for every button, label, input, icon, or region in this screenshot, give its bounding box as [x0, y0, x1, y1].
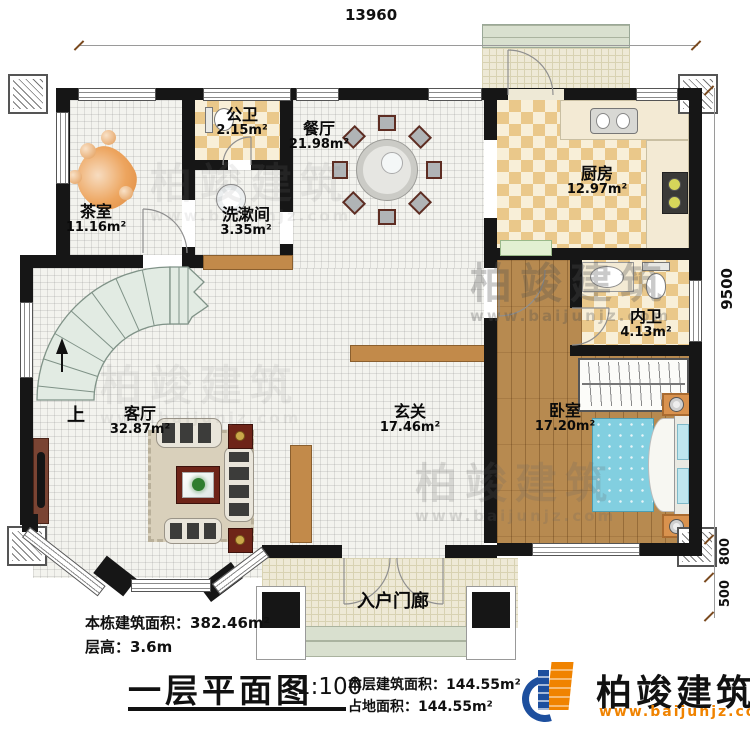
stairs-up-label: 上 — [67, 406, 85, 427]
porch-step-1 — [302, 626, 480, 641]
bedroom-name: 卧室 — [535, 402, 595, 420]
window-tea-left — [56, 112, 69, 184]
window-stairs-left — [20, 302, 33, 378]
room-label-public-bath: 公卫 2.15m² — [216, 106, 267, 139]
kitchen-sink-bowl-2 — [616, 113, 630, 129]
footer-floor-height: 层高：3.6m — [85, 636, 172, 657]
dim-label-step: 500 — [718, 580, 733, 607]
dim-label-height: 9500 — [718, 268, 736, 310]
room-label-dining: 餐厅 21.98m² — [289, 120, 349, 153]
sofa-long-cushions — [229, 452, 249, 516]
dining-chair-1 — [426, 161, 442, 179]
room-label-foyer: 玄关 17.46m² — [380, 403, 440, 436]
wall-tea-right-lower — [182, 247, 195, 268]
dining-chair-5 — [332, 161, 348, 179]
wall-innerbath-bottom — [570, 345, 689, 356]
public-bath-area: 2.15m² — [216, 124, 267, 139]
footer-footprint-area: 占地面积：144.55m² — [348, 696, 493, 716]
tea-stone-ball-1 — [101, 130, 116, 145]
foyer-area: 17.46m² — [380, 421, 440, 436]
sofa-small-cushions — [170, 523, 216, 539]
kitchen-sink-bowl-1 — [596, 113, 610, 129]
wall-wing-left-b — [484, 218, 497, 268]
window-tea-top — [78, 88, 156, 101]
wall-washroom-right-upper — [280, 100, 293, 212]
dining-name: 餐厅 — [289, 120, 349, 138]
coffee-table-plant — [192, 478, 205, 491]
floor-plan-canvas: 茶室 11.16m² 公卫 2.15m² 洗漱间 3.35m² 餐厅 21.98… — [0, 0, 750, 730]
stove-burner-1 — [668, 178, 681, 191]
footer-building-total-area: 本栋建筑面积：382.46m² — [85, 612, 270, 633]
bed-blanket — [648, 418, 676, 512]
tea-stone-ball-2 — [80, 143, 96, 159]
foyer-name: 玄关 — [380, 403, 440, 421]
bed-pillow-2 — [677, 468, 689, 504]
bed-pillow-1 — [677, 424, 689, 460]
dim-label-porch: 800 — [718, 538, 733, 565]
tv-screen — [37, 452, 45, 508]
dim-line-top — [80, 45, 698, 46]
living-area: 32.87m² — [110, 423, 170, 438]
washroom-area: 3.35m² — [220, 224, 271, 239]
tea-stone-ball-4 — [119, 186, 133, 200]
public-toilet-tank — [205, 107, 213, 133]
window-innerbath-right — [689, 280, 702, 342]
tea-stone-ball-3 — [68, 170, 82, 184]
room-label-living: 客厅 32.87m² — [110, 405, 170, 438]
wall-porch-back-left — [262, 545, 342, 558]
wall-tea-right-upper — [182, 100, 195, 200]
window-living-bottom — [131, 579, 211, 592]
innerbath-toilet-tank — [642, 262, 670, 271]
dining-area: 21.98m² — [289, 138, 349, 153]
kitchen-name: 厨房 — [567, 165, 627, 183]
logo-website: www.baijunjz.com — [599, 704, 750, 720]
side-table-lamp-1 — [235, 431, 245, 441]
window-bath-top — [203, 88, 291, 101]
foyer-half-wall — [350, 345, 495, 362]
wall-porch-back-right — [445, 545, 497, 558]
innerbath-sink — [590, 266, 624, 288]
tea-area: 11.16m² — [66, 221, 126, 236]
wall-bath-split-left — [182, 160, 228, 170]
inner-bath-name: 内卫 — [620, 308, 671, 326]
room-label-bedroom: 卧室 17.20m² — [535, 402, 595, 435]
tea-name: 茶室 — [66, 203, 126, 221]
washroom-name: 洗漱间 — [220, 206, 271, 224]
living-name: 客厅 — [110, 405, 170, 423]
wall-innerbath-left — [570, 260, 582, 308]
inner-bath-area: 4.13m² — [620, 326, 671, 341]
dim-tick-right-3 — [704, 572, 715, 583]
bed-mattress — [592, 418, 654, 512]
kitchen-cabinet — [500, 240, 552, 256]
bedroom-area: 17.20m² — [535, 420, 595, 435]
porch-name: 入户门廊 — [357, 592, 429, 613]
side-table-lamp-2 — [235, 535, 245, 545]
wall-left-a — [20, 268, 33, 302]
logo-building-icon-orange — [546, 662, 573, 710]
dining-chair-3 — [378, 209, 396, 225]
footer-floor-area: 本层建筑面积：144.55m² — [348, 674, 521, 694]
hall-cabinet — [203, 255, 293, 270]
wardrobe-rod — [582, 383, 685, 385]
window-kitchen-top — [636, 88, 678, 101]
entry-partition-screen — [290, 445, 312, 543]
wall-left-b — [20, 378, 33, 525]
porch-pillar-right — [472, 592, 510, 628]
window-dining-top-1 — [296, 88, 339, 101]
logo-building-icon-blue — [538, 670, 549, 710]
window-bedroom-bottom — [532, 543, 640, 556]
dim-label-width: 13960 — [345, 6, 397, 24]
room-label-kitchen: 厨房 12.97m² — [567, 165, 627, 198]
dining-table-glass — [381, 152, 403, 174]
title-underline — [128, 707, 346, 711]
window-dining-top-2 — [428, 88, 482, 101]
kitchen-back-door-threshold — [508, 89, 564, 100]
wall-mid-horizontal-left — [20, 255, 143, 268]
stove-burner-2 — [668, 196, 681, 209]
innerbath-toilet-bowl — [646, 273, 666, 299]
dim-line-right — [714, 88, 715, 618]
room-label-porch: 入户门廊 — [357, 592, 429, 613]
dim-tick-right-4 — [704, 611, 715, 622]
dining-chair-7 — [378, 115, 396, 131]
room-label-inner-bath: 内卫 4.13m² — [620, 308, 671, 341]
plan-title: 一层平面图 — [128, 664, 313, 712]
wall-wing-left-c — [484, 318, 497, 543]
wall-wing-left-a — [484, 100, 497, 140]
back-porch-floor — [482, 48, 630, 89]
corner-column-top-left — [8, 74, 48, 114]
nightstand-lamp-1 — [669, 397, 684, 412]
room-label-tea: 茶室 11.16m² — [66, 203, 126, 236]
room-label-washroom: 洗漱间 3.35m² — [220, 206, 271, 239]
kitchen-area: 12.97m² — [567, 183, 627, 198]
public-bath-name: 公卫 — [216, 106, 267, 124]
